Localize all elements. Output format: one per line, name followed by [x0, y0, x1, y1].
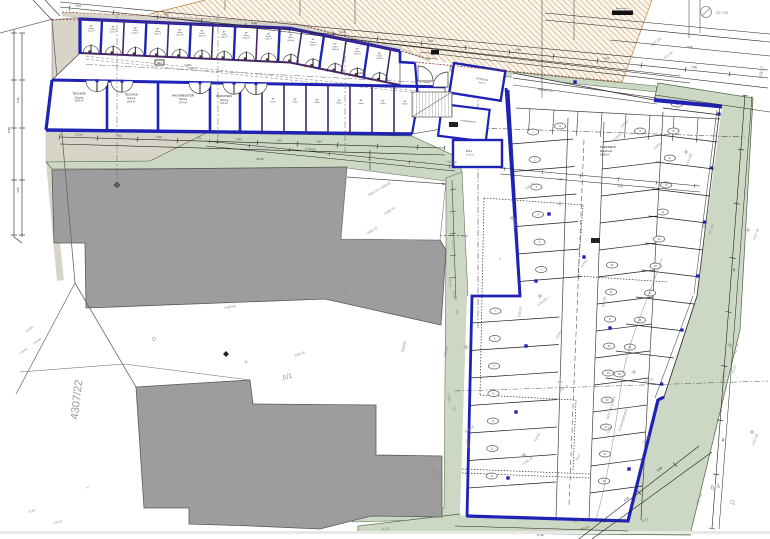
svg-text:Keller: Keller — [199, 32, 205, 35]
svg-text:Keller: Keller — [177, 31, 183, 34]
svg-text:75,60 m²: 75,60 m² — [188, 67, 197, 70]
svg-text:4,88: 4,88 — [515, 47, 521, 52]
svg-text:Allgasschafn: Allgasschafn — [616, 7, 629, 10]
svg-text:3,44: 3,44 — [75, 3, 81, 8]
svg-text:4,88: 4,88 — [163, 12, 169, 17]
svg-text:0435: 0435 — [452, 291, 457, 299]
svg-text:5,40: 5,40 — [236, 137, 242, 141]
svg-text:4,66 m²: 4,66 m² — [309, 43, 316, 46]
svg-text:Keller: Keller — [244, 34, 250, 37]
svg-text:4,66 m²: 4,66 m² — [110, 31, 117, 34]
svg-text:4,94: 4,94 — [316, 139, 322, 143]
svg-text:Keller: Keller — [270, 100, 276, 103]
svg-text:Keller: Keller — [88, 27, 94, 30]
svg-text:2,14: 2,14 — [557, 177, 563, 181]
svg-text:Keller: Keller — [266, 35, 272, 38]
svg-text:3,44: 3,44 — [339, 30, 345, 35]
svg-text:Keller: Keller — [333, 45, 339, 48]
svg-text:Keller: Keller — [155, 30, 161, 33]
svg-text:4,66 m²: 4,66 m² — [176, 34, 183, 37]
svg-text:31661: 31661 — [451, 240, 456, 250]
svg-text:Keller: Keller — [133, 29, 139, 32]
svg-text:537,58: 537,58 — [716, 10, 729, 15]
svg-text:5,46: 5,46 — [156, 135, 162, 139]
svg-text:HAUSMEISTER: HAUSMEISTER — [172, 93, 195, 97]
svg-text:PARKDECK: PARKDECK — [600, 145, 616, 149]
svg-text:1,98: 1,98 — [691, 65, 697, 70]
svg-text:GANG: GANG — [356, 72, 363, 75]
svg-text:3,1 m²: 3,1 m² — [75, 132, 83, 136]
svg-text:13,02 m²: 13,02 m² — [126, 100, 135, 103]
svg-text:✓: ✓ — [86, 485, 90, 491]
svg-text:Keller: Keller — [111, 28, 117, 31]
svg-text:Heizung: Heizung — [179, 99, 188, 101]
svg-text:B13: B13 — [157, 61, 162, 65]
svg-text:4,66 m²: 4,66 m² — [287, 39, 294, 42]
svg-text:Q: Q — [118, 293, 122, 299]
svg-text:17,15 m²: 17,15 m² — [466, 154, 475, 157]
svg-text:4,66 m²: 4,66 m² — [376, 57, 383, 60]
svg-text:4,66 m²: 4,66 m² — [154, 33, 161, 36]
svg-text:4,26: 4,26 — [617, 184, 623, 188]
svg-text:Keller: Keller — [336, 101, 342, 104]
svg-text:4,66 m²: 4,66 m² — [198, 35, 205, 38]
svg-text:28,05 m²: 28,05 m² — [600, 154, 610, 157]
svg-text:Keller: Keller — [314, 101, 320, 104]
svg-text:Keller: Keller — [222, 33, 228, 36]
svg-text:13,97 m²: 13,97 m² — [74, 100, 83, 103]
svg-text:Keller: Keller — [292, 101, 298, 104]
svg-text:2,63: 2,63 — [427, 38, 433, 43]
svg-text:Heizung: Heizung — [220, 100, 229, 102]
svg-text:Keller: Keller — [402, 103, 408, 106]
svg-text:2,59: 2,59 — [116, 134, 122, 138]
svg-text:Keller: Keller — [380, 102, 386, 105]
svg-text:5,46: 5,46 — [16, 97, 20, 103]
svg-text:4,66 m²: 4,66 m² — [354, 53, 361, 56]
svg-text:4,66 m²: 4,66 m² — [221, 36, 228, 39]
svg-text:TECHNIK: TECHNIK — [124, 92, 139, 96]
svg-text:Keller: Keller — [288, 36, 294, 39]
svg-text:4,66 m²: 4,66 m² — [265, 38, 272, 41]
svg-text:Heizung: Heizung — [127, 98, 136, 100]
svg-text:9,74 m²: 9,74 m² — [179, 101, 187, 104]
svg-text:TECHNIK: TECHNIK — [72, 92, 87, 96]
svg-text:WASCHEN: WASCHEN — [216, 94, 232, 98]
svg-text:4,66 m²: 4,66 m² — [243, 37, 250, 40]
svg-text:4,50: 4,50 — [16, 187, 20, 193]
svg-text:Windfang: Windfang — [427, 58, 437, 60]
svg-text:Keller: Keller — [310, 41, 316, 44]
svg-text:4,88: 4,88 — [251, 21, 257, 26]
svg-text:Keller: Keller — [358, 102, 364, 105]
svg-text:4,66 m²: 4,66 m² — [87, 30, 94, 33]
svg-text:25,36: 25,36 — [256, 157, 264, 161]
svg-text:GANG: GANG — [184, 64, 191, 67]
svg-text:Keller: Keller — [355, 50, 361, 53]
svg-text:Keller: Keller — [377, 54, 383, 57]
svg-text:5,06: 5,06 — [687, 45, 693, 50]
svg-text:8,10 m²: 8,10 m² — [220, 102, 228, 105]
svg-text:8,90: 8,90 — [7, 127, 11, 133]
svg-text:Heizung: Heizung — [75, 97, 84, 99]
svg-text:4,63: 4,63 — [603, 56, 609, 61]
svg-text:4,66 m²: 4,66 m² — [132, 32, 139, 35]
svg-text:4,66 m²: 4,66 m² — [332, 48, 339, 51]
svg-text:3,30: 3,30 — [276, 138, 282, 142]
svg-text:17,45: 17,45 — [536, 533, 544, 537]
svg-text:MÜLL: MÜLL — [466, 150, 473, 153]
